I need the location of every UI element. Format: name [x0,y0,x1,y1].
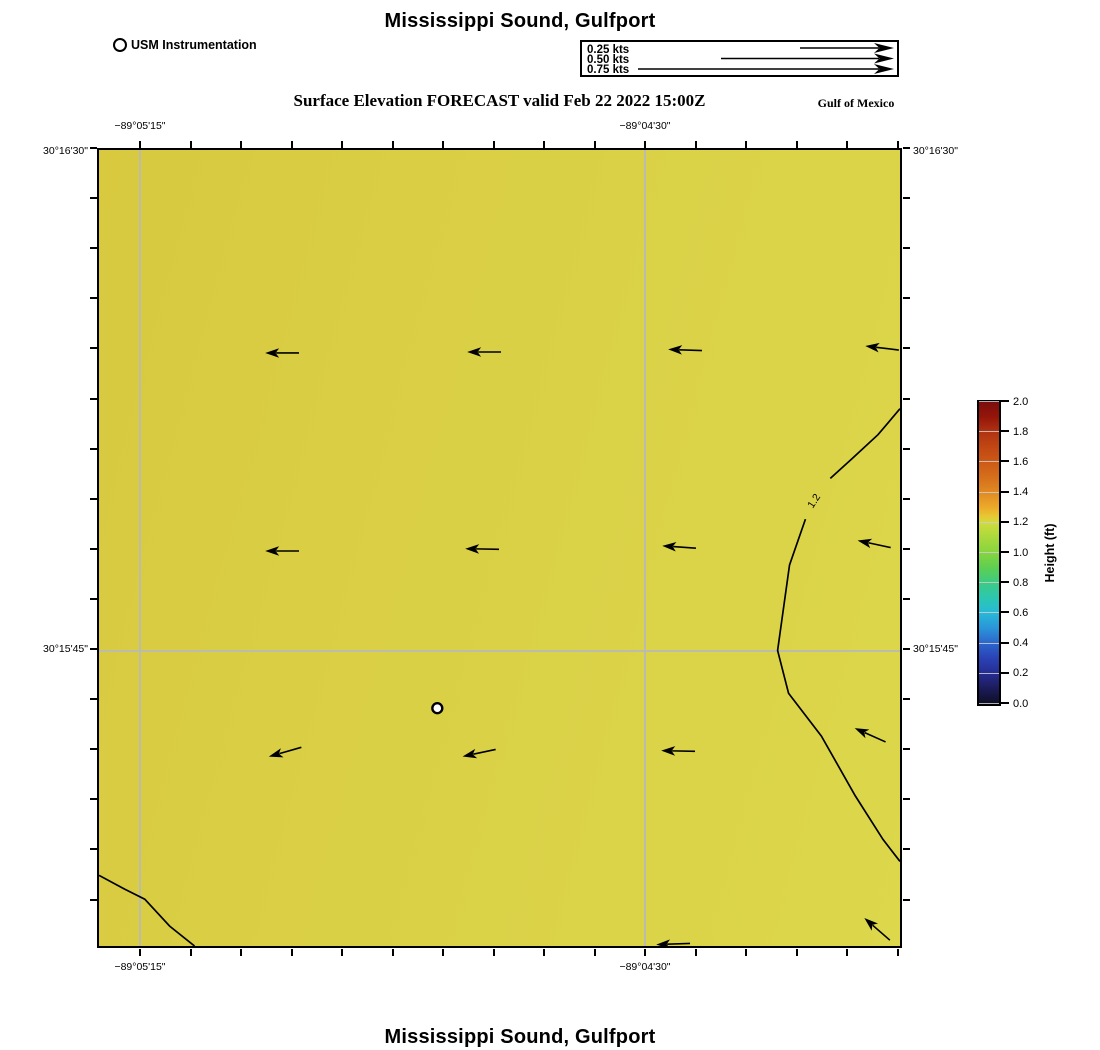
axis-tick [903,398,910,400]
axis-tick [594,949,596,956]
colorbar-tick [1001,672,1009,674]
axis-tick [903,798,910,800]
axis-tick [644,141,646,148]
colorbar-tick [1001,400,1009,402]
colorbar-tick-label: 0.8 [1013,577,1047,589]
axis-tick [846,141,848,148]
colorbar-tick [1001,551,1009,553]
axis-tick [903,548,910,550]
colorbar-gridline [979,552,999,553]
axis-tick [90,448,97,450]
axis-tick [90,548,97,550]
axis-tick [903,498,910,500]
axis-label-lon-top-right: −89°04'30" [590,120,700,132]
axis-tick [493,949,495,956]
axis-tick [90,899,97,901]
station-legend-icon [113,38,127,52]
colorbar-tick [1001,642,1009,644]
contour-line [778,519,900,861]
axis-tick [543,141,545,148]
axis-tick [903,448,910,450]
colorbar-tick-label: 1.4 [1013,486,1047,498]
axis-tick [291,949,293,956]
axis-tick [846,949,848,956]
map-overlay-layer: 1.2 [99,150,900,946]
axis-tick [90,297,97,299]
axis-label-lat-left-mid: 30°15'45" [8,643,88,655]
speed-legend-box: 0.25 kts 0.50 kts 0.75 kts [580,40,899,77]
colorbar-gridline [979,522,999,523]
axis-tick [90,748,97,750]
axis-tick [341,141,343,148]
colorbar [977,400,1001,706]
colorbar-gridline [979,612,999,613]
colorbar-tick [1001,521,1009,523]
axis-tick [903,648,910,650]
colorbar-gridline [979,492,999,493]
colorbar-tick [1001,460,1009,462]
axis-tick [442,949,444,956]
current-vector-arrow [265,348,299,358]
axis-tick [695,949,697,956]
axis-tick [291,141,293,148]
axis-tick [90,147,97,149]
axis-tick [90,398,97,400]
current-vector-arrow [462,745,497,761]
axis-tick [493,141,495,148]
current-vector-arrow [465,544,499,554]
current-vector-arrow [656,939,690,946]
axis-tick [90,247,97,249]
colorbar-tick [1001,611,1009,613]
axis-tick [745,141,747,148]
station-marker [432,703,442,713]
axis-tick [796,949,798,956]
speed-legend-arrows [582,42,897,75]
axis-tick [90,598,97,600]
axis-label-lat-right-top: 30°16'30" [913,145,993,157]
axis-tick [903,899,910,901]
axis-label-lon-bottom-left: −89°05'15" [85,961,195,973]
axis-tick [139,141,141,148]
axis-tick [240,949,242,956]
colorbar-tick-label: 1.8 [1013,426,1047,438]
colorbar-gridline [979,643,999,644]
axis-tick [139,949,141,956]
colorbar-tick-label: 0.6 [1013,607,1047,619]
colorbar-tick [1001,581,1009,583]
axis-tick [341,949,343,956]
axis-tick [903,598,910,600]
current-vector-arrow [668,345,702,356]
colorbar-tick [1001,430,1009,432]
axis-tick [90,698,97,700]
colorbar-gridline [979,673,999,674]
contour-line [830,409,900,479]
current-vector-arrow [865,341,900,355]
axis-tick [90,498,97,500]
axis-tick [644,949,646,956]
axis-tick [90,347,97,349]
colorbar-gridline [979,582,999,583]
colorbar-tick-label: 0.0 [1013,698,1047,710]
axis-tick [903,147,910,149]
forecast-plot-page: { "header": { "title": "Mississippi Soun… [0,0,1100,1050]
axis-tick [903,197,910,199]
colorbar-tick-label: 2.0 [1013,396,1047,408]
axis-tick [594,141,596,148]
colorbar-tick-label: 1.6 [1013,456,1047,468]
colorbar-tick-label: 1.0 [1013,547,1047,559]
map-plot-area: 1.2 [97,148,902,948]
colorbar-tick [1001,702,1009,704]
axis-tick [903,247,910,249]
axis-tick [695,141,697,148]
colorbar-gridline [979,461,999,462]
axis-tick [90,798,97,800]
colorbar-tick-label: 1.2 [1013,516,1047,528]
current-vector-arrow [265,546,299,556]
colorbar-axis-label: Height (ft) [1043,523,1057,582]
current-vector-arrow [662,541,696,553]
axis-label-lon-top-left: −89°05'15" [85,120,195,132]
axis-tick [392,141,394,148]
axis-tick [903,698,910,700]
axis-tick [190,141,192,148]
axis-tick [745,949,747,956]
axis-tick [90,648,97,650]
page-title: Mississippi Sound, Gulfport [97,10,943,33]
colorbar-tick-label: 0.2 [1013,667,1047,679]
current-vector-arrow [467,347,501,357]
axis-tick [90,197,97,199]
colorbar-tick-label: 0.4 [1013,637,1047,649]
axis-tick [897,949,899,956]
axis-tick [392,949,394,956]
region-label: Gulf of Mexico [766,96,946,111]
axis-tick [240,141,242,148]
axis-tick [897,141,899,148]
axis-label-lon-bottom-right: −89°04'30" [590,961,700,973]
axis-tick [903,347,910,349]
axis-tick [442,141,444,148]
footer-title: Mississippi Sound, Gulfport [97,1026,943,1049]
current-vector-arrow [853,724,888,746]
contour-label: 1.2 [806,492,823,510]
colorbar-gridline [979,431,999,432]
axis-tick [190,949,192,956]
colorbar-tick [1001,491,1009,493]
current-vector-arrow [268,743,303,762]
axis-tick [903,748,910,750]
current-vector-arrow [857,536,892,552]
current-vector-arrow [861,914,893,943]
station-legend-label: USM Instrumentation [131,38,257,52]
axis-tick [90,848,97,850]
axis-tick [543,949,545,956]
colorbar-gridline [979,703,999,704]
colorbar-gridline [979,401,999,402]
current-vector-arrow [661,746,695,756]
axis-tick [903,848,910,850]
axis-tick [903,297,910,299]
contour-line [99,875,195,946]
axis-tick [796,141,798,148]
axis-label-lat-left-top: 30°16'30" [8,145,88,157]
